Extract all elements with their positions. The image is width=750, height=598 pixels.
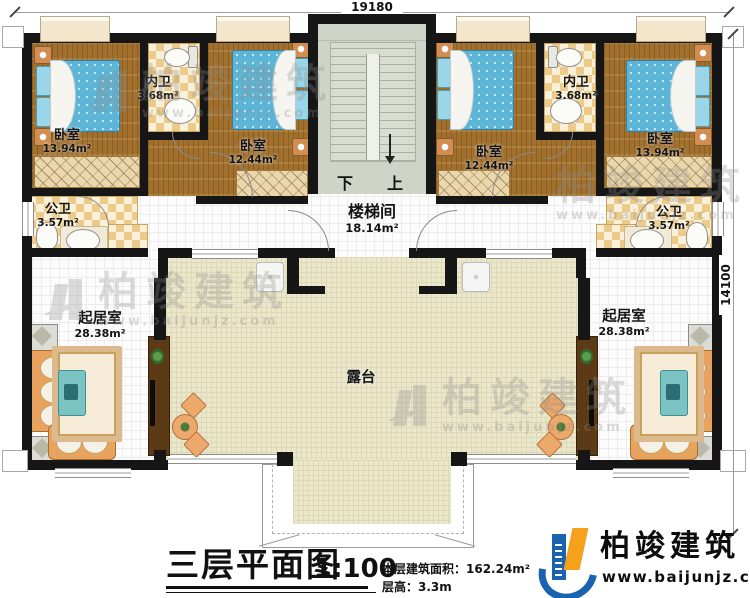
- wall: [158, 248, 168, 278]
- bay-window: [456, 16, 530, 42]
- wall: [426, 14, 436, 194]
- dimension-right-label: 14100: [719, 255, 733, 315]
- room-name: 卧室: [465, 145, 514, 160]
- exterior-pilaster: [2, 26, 24, 48]
- wall: [596, 188, 722, 196]
- stair-down-label: 下: [337, 170, 353, 194]
- toilet-icon: [164, 48, 190, 67]
- room-name: 卧室: [43, 128, 92, 143]
- window: [712, 202, 724, 236]
- terrace-lamp-icon: [462, 262, 490, 292]
- wall-pier: [277, 452, 293, 466]
- wall: [576, 248, 586, 278]
- wall: [419, 286, 445, 294]
- floor-height-note: 层高：3.3m: [382, 580, 452, 594]
- room-area: 28.38m²: [598, 326, 649, 339]
- wall: [196, 196, 308, 204]
- bed-pillow-icon: [36, 66, 51, 96]
- room-area: 3.57m²: [37, 217, 78, 229]
- bed-pillow-icon: [695, 66, 710, 96]
- wall: [140, 43, 148, 196]
- bay-window: [636, 16, 706, 42]
- terrace-bump-floor: [293, 460, 451, 524]
- room-label-bedroom-left-inner: 卧室 12.44m²: [229, 139, 278, 167]
- wall: [200, 43, 208, 140]
- tv-icon: [589, 380, 594, 426]
- room-label-inner-bath-left: 内卫 3.68m²: [137, 75, 178, 103]
- room-name: 公卫: [648, 205, 689, 220]
- wall: [22, 188, 148, 196]
- coffee-table-decor: [64, 384, 78, 400]
- brand-name: 柏竣建筑: [600, 532, 740, 562]
- wardrobe-icon: [34, 156, 140, 188]
- room-label-stairwell: 楼梯间 18.14m²: [345, 203, 398, 235]
- wall: [536, 43, 544, 140]
- bed-pillow-icon: [695, 97, 710, 127]
- room-area: 13.94m²: [636, 147, 685, 159]
- room-label-terrace: 露台: [347, 370, 376, 387]
- window: [22, 202, 34, 236]
- room-name: 起居室: [598, 309, 649, 326]
- room-area: 12.44m²: [229, 154, 278, 166]
- room-name: 卧室: [636, 132, 685, 147]
- wall: [287, 248, 299, 294]
- wall: [308, 14, 436, 24]
- room-name: 楼梯间: [345, 203, 398, 222]
- bay-window: [216, 16, 290, 42]
- wall-pier: [451, 452, 467, 466]
- floor-area-note: 本层建筑面积：162.24m²: [382, 562, 530, 576]
- room-label-living-right: 起居室 28.38m²: [598, 309, 649, 339]
- room-name: 内卫: [555, 75, 596, 90]
- dimension-top-label: 19180: [341, 0, 403, 13]
- wall: [308, 14, 318, 194]
- plant-icon: [151, 349, 164, 364]
- terrace-parapet-left: [168, 454, 277, 464]
- room-area: 3.68m²: [137, 90, 178, 102]
- wall: [596, 248, 722, 257]
- room-label-bedroom-left-outer: 卧室 13.94m²: [43, 128, 92, 156]
- room-name: 内卫: [137, 75, 178, 90]
- room-label-living-left: 起居室 28.38m²: [74, 311, 125, 341]
- room-area: 28.38m²: [74, 328, 125, 341]
- toilet-icon: [556, 48, 582, 67]
- room-label-bedroom-right-outer: 卧室 13.94m²: [636, 132, 685, 160]
- room-name: 公卫: [37, 202, 78, 217]
- stair-direction-arrow: [389, 134, 391, 156]
- wall: [436, 196, 548, 204]
- title-underline: [166, 586, 368, 589]
- bed-pillow-icon: [294, 58, 309, 88]
- wall: [22, 248, 148, 257]
- nightstand-icon: [694, 44, 712, 62]
- bed-pillow-icon: [294, 90, 309, 120]
- plant-icon: [580, 349, 593, 364]
- stair-arrow-head-icon: [385, 156, 395, 164]
- dimension-line-right: [733, 34, 734, 534]
- wall: [578, 278, 590, 340]
- nightstand-icon: [694, 128, 712, 146]
- room-label-public-bath-right: 公卫 3.57m²: [648, 205, 689, 233]
- window: [486, 249, 552, 259]
- terrace-lamp-icon: [256, 262, 284, 292]
- bed-sheet-icon: [272, 50, 296, 130]
- brand-url: www.baijunjz.com: [602, 570, 750, 585]
- exterior-pilaster: [2, 450, 28, 472]
- bay-window: [40, 16, 110, 42]
- brand-logo-icon: [536, 526, 592, 590]
- wall: [445, 248, 457, 294]
- wardrobe-icon: [606, 156, 712, 188]
- stair-handrail: [366, 54, 380, 160]
- title-underline-thin: [166, 592, 376, 593]
- tv-icon: [150, 380, 155, 426]
- room-label-inner-bath-right: 内卫 3.68m²: [555, 75, 596, 103]
- stair-up-label: 上: [387, 170, 403, 194]
- wall: [578, 450, 590, 462]
- bed-sheet-icon: [670, 60, 696, 132]
- window: [192, 249, 258, 259]
- room-area: 12.44m²: [465, 160, 514, 172]
- bed-pillow-icon: [36, 97, 51, 127]
- nightstand-icon: [436, 138, 454, 156]
- room-label-bedroom-right-inner: 卧室 12.44m²: [465, 145, 514, 173]
- window: [613, 468, 689, 478]
- terrace-parapet-right: [467, 454, 576, 464]
- wall: [154, 450, 166, 462]
- room-name: 起居室: [74, 311, 125, 328]
- wall: [299, 286, 325, 294]
- terrace-floor: [166, 257, 578, 460]
- room-area: 3.57m²: [648, 220, 689, 232]
- wall: [596, 43, 604, 196]
- window: [55, 468, 131, 478]
- room-name: 露台: [347, 370, 376, 387]
- room-area: 3.68m²: [555, 90, 596, 102]
- room-label-public-bath-left: 公卫 3.57m²: [37, 202, 78, 230]
- room-area: 13.94m²: [43, 143, 92, 155]
- coffee-table-decor: [666, 384, 680, 400]
- floor-plan: 卧室 13.94m² 内卫 3.68m² 卧室 12.44m² 公卫 3.57m…: [0, 0, 750, 598]
- wall: [154, 278, 166, 340]
- stair-landing-line: [318, 40, 426, 41]
- room-area: 18.14m²: [345, 222, 398, 236]
- room-name: 卧室: [229, 139, 278, 154]
